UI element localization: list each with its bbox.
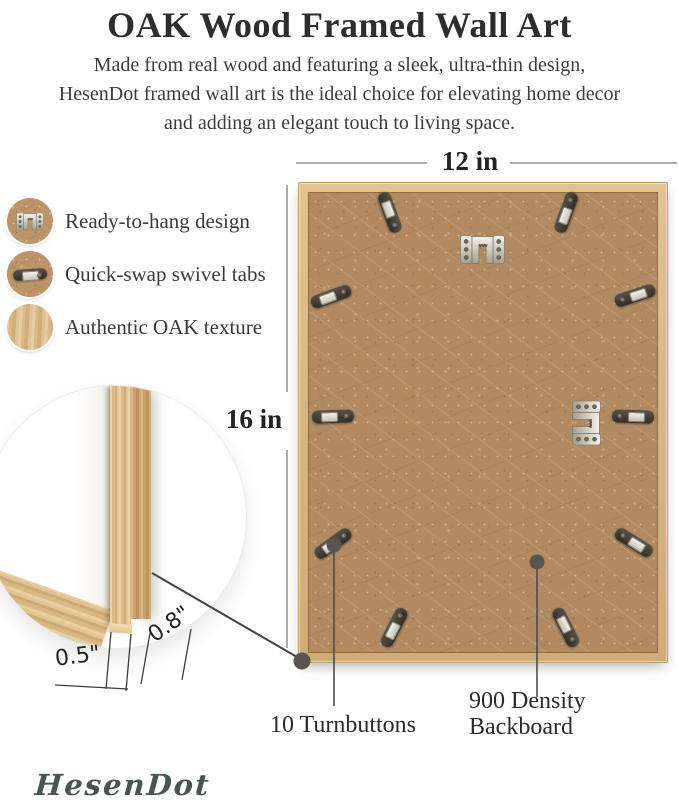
height-dimension-label: 16 in bbox=[210, 404, 298, 435]
feature-row: Ready-to-hang design bbox=[7, 198, 266, 244]
turnbuttons-callout-label: 10 Turnbuttons bbox=[248, 712, 438, 739]
oak-texture-icon bbox=[7, 304, 53, 350]
backboard-callout-label: 900 Density Backboard bbox=[469, 688, 586, 740]
width-dimension-label: 12 in bbox=[427, 146, 513, 177]
corner-detail-inset bbox=[0, 386, 246, 648]
swivel-tab-icon bbox=[7, 251, 53, 297]
sawtooth-hanger-icon bbox=[7, 198, 53, 244]
sawtooth-hanger-side bbox=[563, 400, 605, 446]
description-line: HesenDot framed wall art is the ideal ch… bbox=[0, 80, 679, 109]
feature-label: Quick-swap swivel tabs bbox=[65, 262, 266, 287]
description-line: Made from real wood and featuring a slee… bbox=[0, 51, 679, 80]
sawtooth-hanger bbox=[459, 231, 506, 273]
turnbutton bbox=[312, 409, 354, 423]
product-description: Made from real wood and featuring a slee… bbox=[0, 51, 679, 138]
frame-side-bar-depth bbox=[131, 386, 151, 619]
page-title: OAK Wood Framed Wall Art bbox=[0, 4, 679, 46]
backboard-callout-line2: Backboard bbox=[469, 714, 586, 740]
feature-label: Ready-to-hang design bbox=[65, 209, 250, 234]
frame-side-bar-front bbox=[110, 386, 131, 627]
description-line: and adding an elegant touch to living sp… bbox=[0, 109, 679, 138]
sawtooth-hanger-glyph bbox=[16, 210, 44, 233]
face-width-connector bbox=[55, 685, 128, 689]
product-infographic: OAK Wood Framed Wall Art Made from real … bbox=[0, 0, 679, 805]
face-width-label: 0.5" bbox=[54, 641, 102, 671]
feature-list: Ready-to-hang design Quick-swap swivel t… bbox=[7, 198, 266, 357]
backboard-callout-line1: 900 Density bbox=[469, 688, 586, 714]
depth-tick bbox=[182, 629, 191, 680]
feature-row: Quick-swap swivel tabs bbox=[7, 251, 266, 297]
feature-label: Authentic OAK texture bbox=[65, 315, 262, 340]
swivel-tab-glyph bbox=[13, 267, 48, 280]
feature-row: Authentic OAK texture bbox=[7, 304, 266, 350]
frame-side-bar-end bbox=[109, 623, 133, 634]
brand-logo: HesenDot bbox=[34, 768, 212, 802]
turnbutton bbox=[612, 409, 654, 423]
